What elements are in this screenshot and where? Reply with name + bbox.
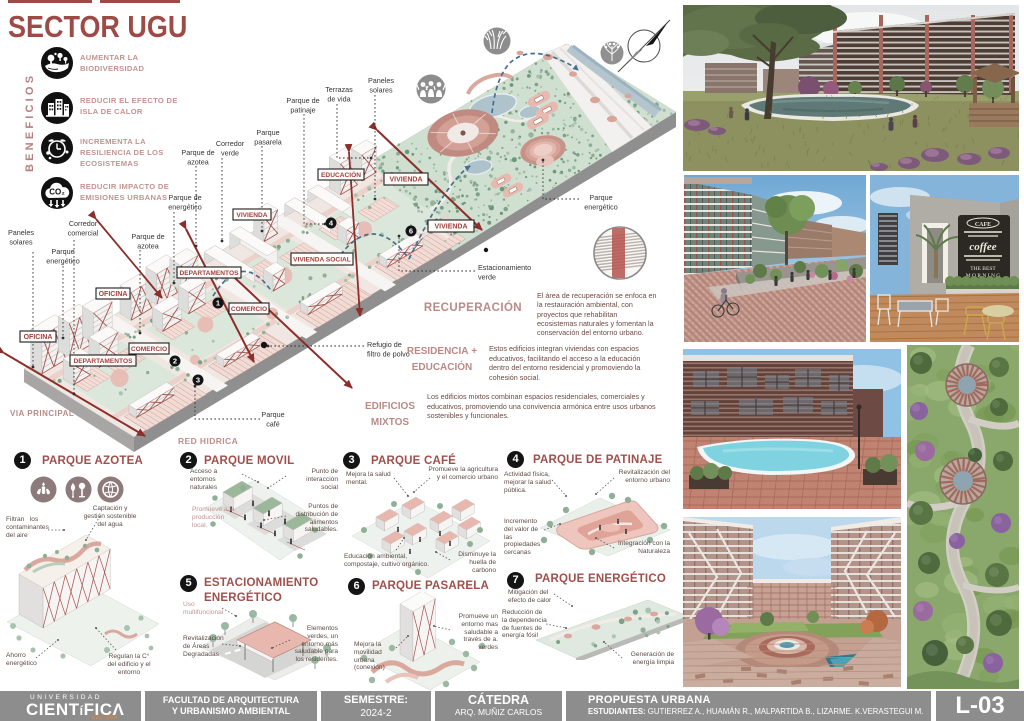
svg-text:THE BEST: THE BEST [970, 266, 996, 272]
svg-text:CAFE: CAFE [975, 222, 991, 228]
svg-text:coffee: coffee [969, 241, 996, 253]
